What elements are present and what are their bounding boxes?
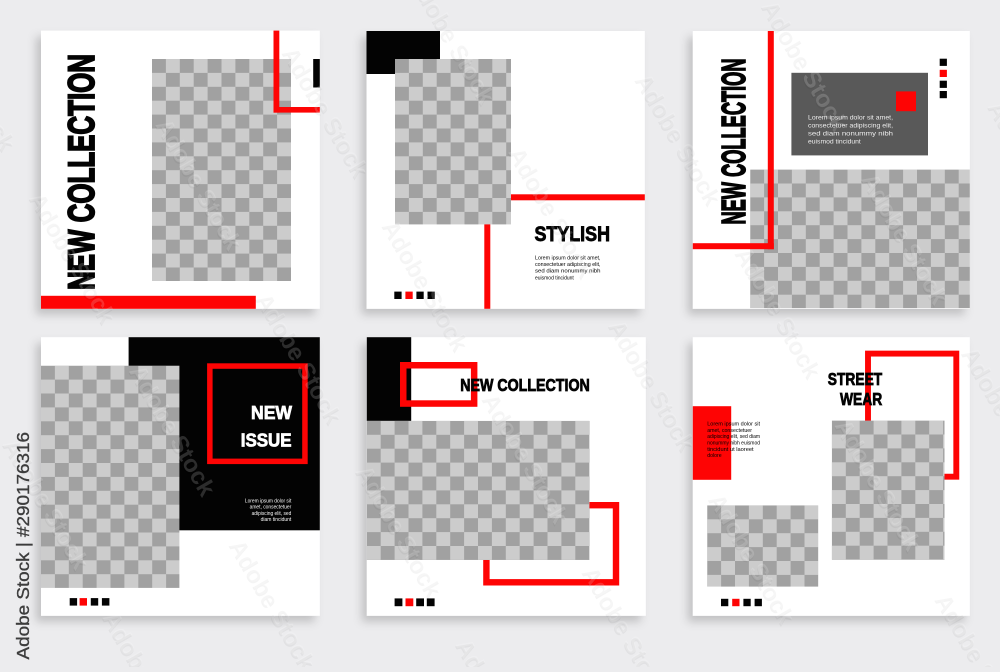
svg-text:diam tincidunt: diam tincidunt (261, 517, 292, 523)
svg-text:Lorem ipsum dolor sit: Lorem ipsum dolor sit (245, 498, 292, 504)
svg-text:Lorem ipsum dolor sit: Lorem ipsum dolor sit (707, 422, 760, 428)
svg-text:STREET: STREET (828, 369, 883, 389)
svg-text:sed diam nonummy nibh: sed diam nonummy nibh (808, 130, 893, 137)
svg-text:NEW COLLECTION: NEW COLLECTION (716, 59, 753, 225)
svg-text:adipiscing elit, sed diam: adipiscing elit, sed diam (707, 434, 760, 440)
svg-text:amet, consectetuer: amet, consectetuer (707, 428, 752, 434)
svg-text:ISSUE: ISSUE (241, 430, 292, 451)
svg-text:nonummy nibh euismod: nonummy nibh euismod (707, 441, 760, 447)
svg-text:NEW COLLECTION: NEW COLLECTION (460, 375, 590, 395)
svg-text:amet, consectetuer: amet, consectetuer (250, 505, 292, 511)
svg-text:NEW: NEW (251, 402, 292, 423)
svg-text:adipiscing elit, sed: adipiscing elit, sed (252, 511, 292, 517)
svg-text:dolore: dolore (707, 453, 722, 459)
svg-text:euismod tincidunt: euismod tincidunt (535, 275, 574, 281)
svg-text:Adobe Stock | #290176316: Adobe Stock | #290176316 (13, 432, 33, 660)
svg-text:tincidunt ut laoreet: tincidunt ut laoreet (707, 447, 754, 453)
svg-text:euismod tincidunt: euismod tincidunt (808, 138, 861, 145)
svg-text:WEAR: WEAR (840, 389, 882, 409)
